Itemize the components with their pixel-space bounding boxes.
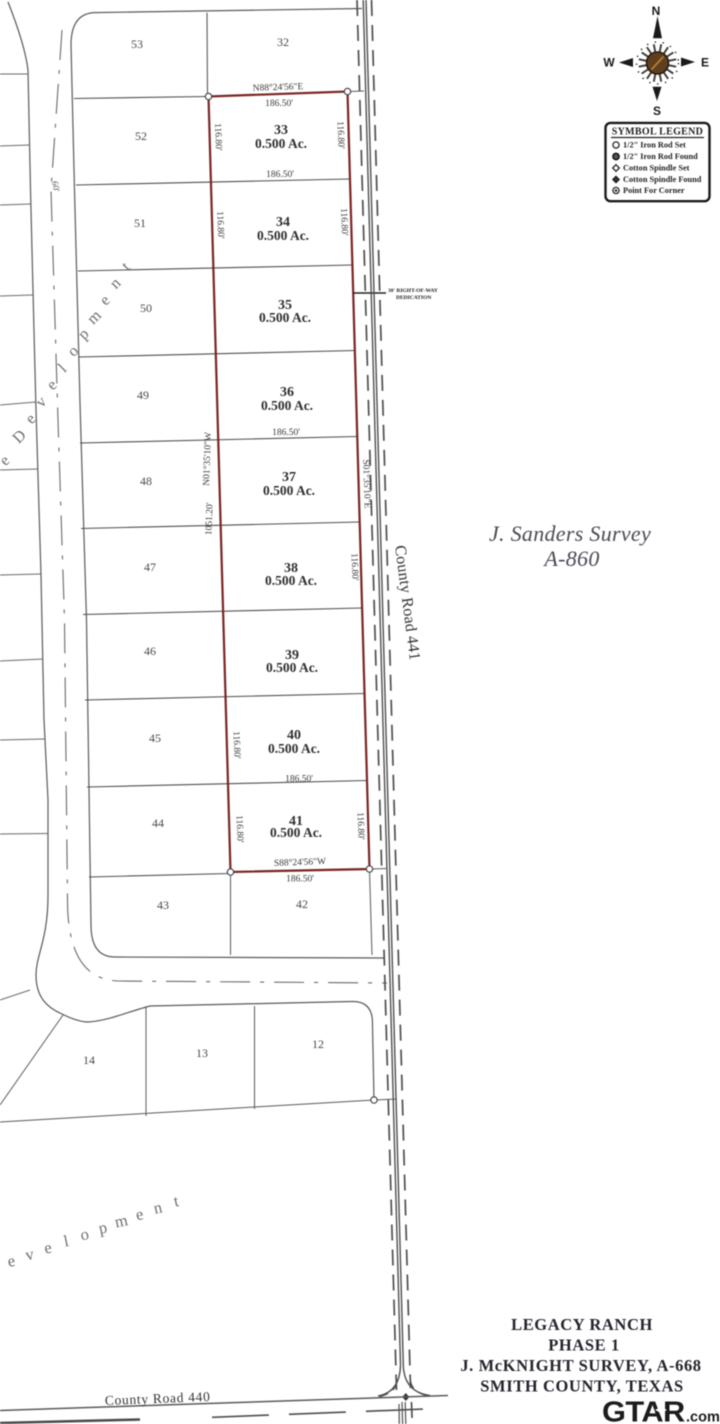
- svg-text:S88°24'56"W: S88°24'56"W: [274, 856, 327, 869]
- svg-text:44: 44: [152, 816, 164, 830]
- svg-text:46: 46: [144, 644, 156, 658]
- svg-text:13: 13: [196, 1046, 208, 1060]
- svg-text:0.500 Ac.: 0.500 Ac.: [255, 136, 307, 151]
- svg-text:S: S: [653, 104, 661, 118]
- svg-text:W: W: [603, 56, 615, 70]
- svg-text:32: 32: [277, 35, 289, 49]
- svg-text:N01°35'10"W: N01°35'10"W: [201, 432, 214, 486]
- svg-text:Point For Corner: Point For Corner: [623, 186, 685, 195]
- svg-text:116.80': 116.80': [231, 731, 242, 759]
- svg-text:43: 43: [157, 898, 169, 912]
- svg-text:1051.20': 1051.20': [204, 502, 215, 535]
- svg-text:116.80': 116.80': [349, 553, 360, 581]
- svg-text:30' RIGHT-OF-WAY: 30' RIGHT-OF-WAY: [388, 288, 438, 294]
- svg-text:52: 52: [135, 129, 147, 143]
- svg-text:Cotton Spindle Set: Cotton Spindle Set: [623, 164, 690, 173]
- svg-text:E: E: [701, 56, 709, 70]
- svg-text:116.80': 116.80': [338, 208, 349, 236]
- svg-text:LEGACY RANCH: LEGACY RANCH: [511, 1315, 653, 1334]
- svg-text:51: 51: [134, 216, 146, 230]
- svg-text:DEDICATION: DEDICATION: [396, 295, 431, 301]
- svg-text:0.500 Ac.: 0.500 Ac.: [259, 310, 311, 325]
- svg-text:0.500 Ac.: 0.500 Ac.: [263, 483, 315, 498]
- svg-text:N88°24'56"E: N88°24'56"E: [252, 81, 303, 94]
- svg-text:J. McKNIGHT SURVEY, A-668: J. McKNIGHT SURVEY, A-668: [460, 1356, 701, 1375]
- svg-text:116.80': 116.80': [234, 815, 245, 843]
- svg-text:47: 47: [144, 560, 156, 574]
- svg-text:116.80': 116.80': [355, 812, 366, 840]
- svg-text:45: 45: [149, 731, 161, 745]
- svg-text:J. Sanders Survey: J. Sanders Survey: [489, 521, 651, 546]
- svg-text:SMITH COUNTY, TEXAS: SMITH COUNTY, TEXAS: [480, 1377, 684, 1396]
- svg-text:0.500 Ac.: 0.500 Ac.: [261, 398, 313, 413]
- svg-text:12: 12: [312, 1037, 324, 1051]
- svg-text:0.500 Ac.: 0.500 Ac.: [266, 660, 318, 675]
- svg-text:0.500 Ac.: 0.500 Ac.: [257, 228, 309, 243]
- svg-text:0.500 Ac.: 0.500 Ac.: [270, 825, 322, 840]
- svg-text:186.50': 186.50': [265, 99, 293, 109]
- svg-text:0.500 Ac.: 0.500 Ac.: [268, 741, 320, 756]
- svg-text:.com: .com: [686, 1410, 720, 1424]
- svg-text:Cotton Spindle Found: Cotton Spindle Found: [623, 175, 702, 184]
- svg-text:49: 49: [137, 388, 149, 402]
- svg-text:116.80': 116.80': [214, 211, 225, 239]
- svg-text:186.50': 186.50': [285, 775, 313, 785]
- svg-text:186.50': 186.50': [266, 170, 294, 180]
- svg-text:186.50': 186.50': [272, 428, 300, 438]
- svg-text:14: 14: [83, 1053, 95, 1067]
- svg-text:0.500 Ac.: 0.500 Ac.: [265, 573, 317, 588]
- svg-text:1/2" Iron Rod Set: 1/2" Iron Rod Set: [623, 141, 686, 150]
- svg-text:48: 48: [140, 474, 152, 488]
- svg-text:50: 50: [140, 301, 152, 315]
- svg-text:53: 53: [131, 37, 143, 51]
- svg-text:A-860: A-860: [542, 546, 599, 571]
- svg-text:116.80': 116.80': [212, 123, 223, 151]
- svg-text:GTAR: GTAR: [602, 1397, 685, 1424]
- svg-text:N: N: [652, 4, 661, 18]
- svg-text:SYMBOL LEGEND: SYMBOL LEGEND: [612, 127, 703, 138]
- svg-text:42: 42: [296, 897, 308, 911]
- svg-text:186.50': 186.50': [286, 875, 314, 885]
- svg-text:1/2" Iron Rod Found: 1/2" Iron Rod Found: [623, 152, 698, 161]
- svg-text:116.80': 116.80': [335, 121, 346, 149]
- svg-text:PHASE 1: PHASE 1: [548, 1336, 620, 1355]
